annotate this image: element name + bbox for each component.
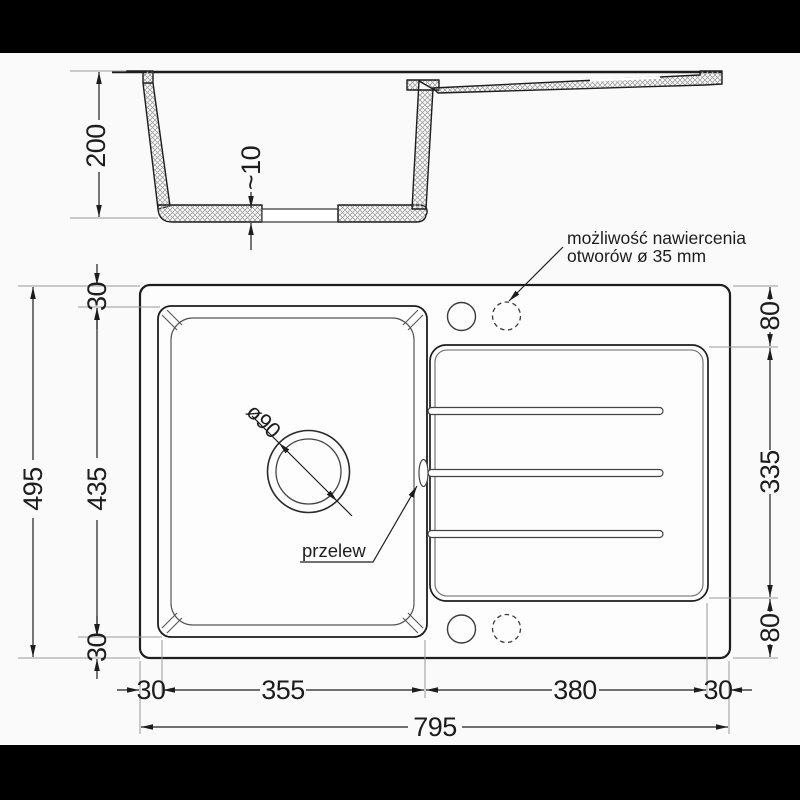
dim-label-355: 355 xyxy=(261,675,305,705)
drill-note-line1: możliwość nawiercenia xyxy=(567,228,746,248)
dim-label-435: 435 xyxy=(82,467,112,511)
drawing-svg: 200 ~10 ø90 przele xyxy=(0,0,800,800)
dim-label-80-top: 80 xyxy=(755,301,785,330)
dim-label-30-top-left: 30 xyxy=(82,282,112,311)
dim-label-30-bottom-r: 30 xyxy=(703,675,732,705)
dim-label-335: 335 xyxy=(755,450,785,494)
overflow-hole xyxy=(419,460,428,487)
section-bottom-left xyxy=(158,205,262,222)
dim-label-30-bottom-left: 30 xyxy=(82,633,112,662)
dim-label-495: 495 xyxy=(18,467,48,511)
label-overflow: przelew xyxy=(302,540,366,561)
section-bottom-thin xyxy=(262,209,338,222)
drain-groove-3 xyxy=(428,531,663,538)
drawing-page: 200 ~10 ø90 przele xyxy=(0,0,800,800)
dim-label-30-bottom-l: 30 xyxy=(136,675,165,705)
drain-groove-1 xyxy=(428,408,663,415)
dim-label-795: 795 xyxy=(413,712,457,742)
drain-groove-2 xyxy=(428,470,663,477)
dim-label-10: ~10 xyxy=(236,146,266,190)
dim-label-80-bottom: 80 xyxy=(755,613,785,642)
drill-note-line2: otworów ø 35 mm xyxy=(567,246,706,266)
dim-label-200: 200 xyxy=(81,124,111,168)
plan-view xyxy=(140,285,730,658)
dim-label-380: 380 xyxy=(553,675,597,705)
